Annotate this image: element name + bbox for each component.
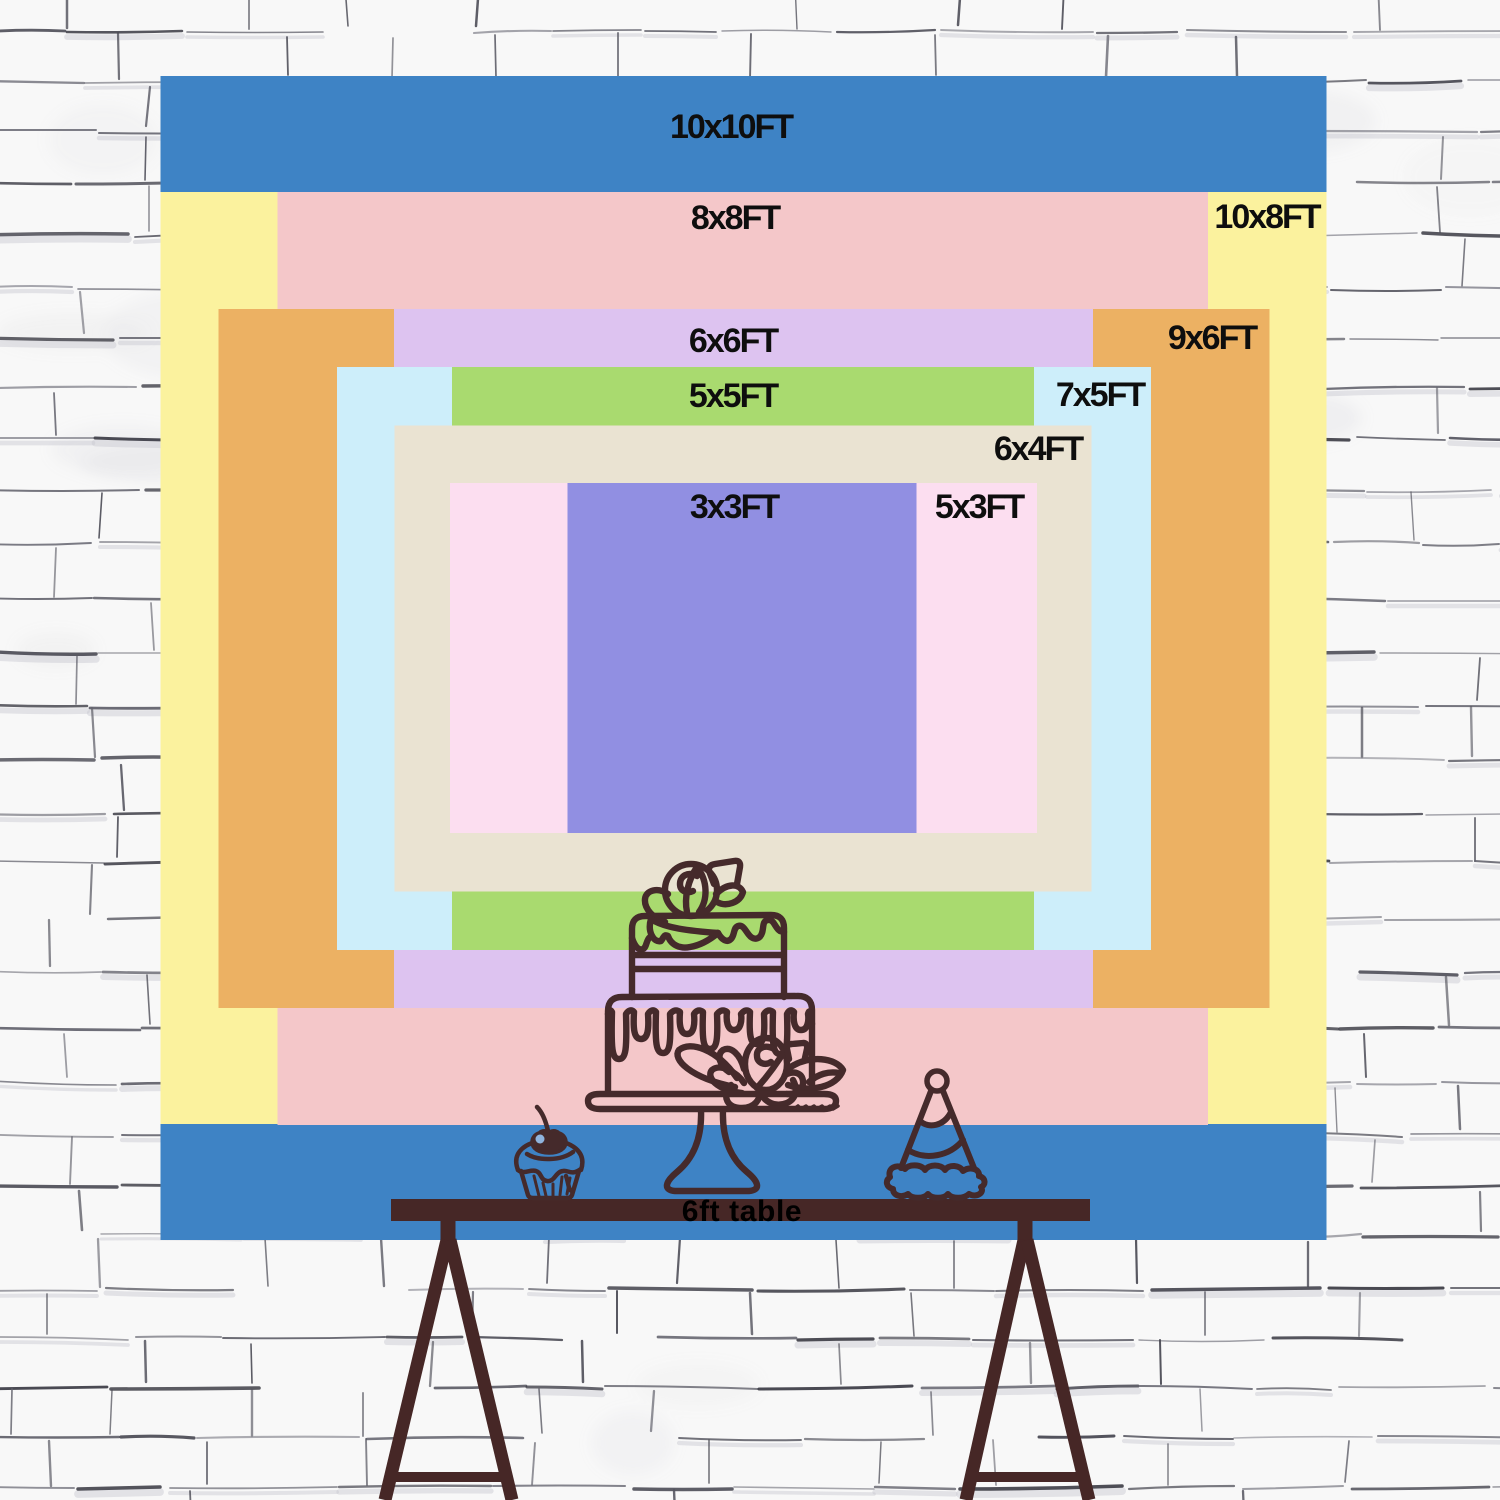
svg-text:6x6FT: 6x6FT <box>689 322 779 360</box>
svg-text:6ft table: 6ft table <box>682 1195 802 1228</box>
svg-text:7x5FT: 7x5FT <box>1056 376 1146 414</box>
svg-text:6x4FT: 6x4FT <box>994 430 1084 468</box>
svg-text:9x6FT: 9x6FT <box>1168 319 1258 357</box>
svg-text:8x8FT: 8x8FT <box>691 199 781 237</box>
svg-text:10x10FT: 10x10FT <box>670 108 794 146</box>
svg-text:5x3FT: 5x3FT <box>935 488 1025 526</box>
svg-text:3x3FT: 3x3FT <box>690 488 780 526</box>
svg-text:10x8FT: 10x8FT <box>1214 198 1321 236</box>
svg-text:5x5FT: 5x5FT <box>689 377 779 415</box>
